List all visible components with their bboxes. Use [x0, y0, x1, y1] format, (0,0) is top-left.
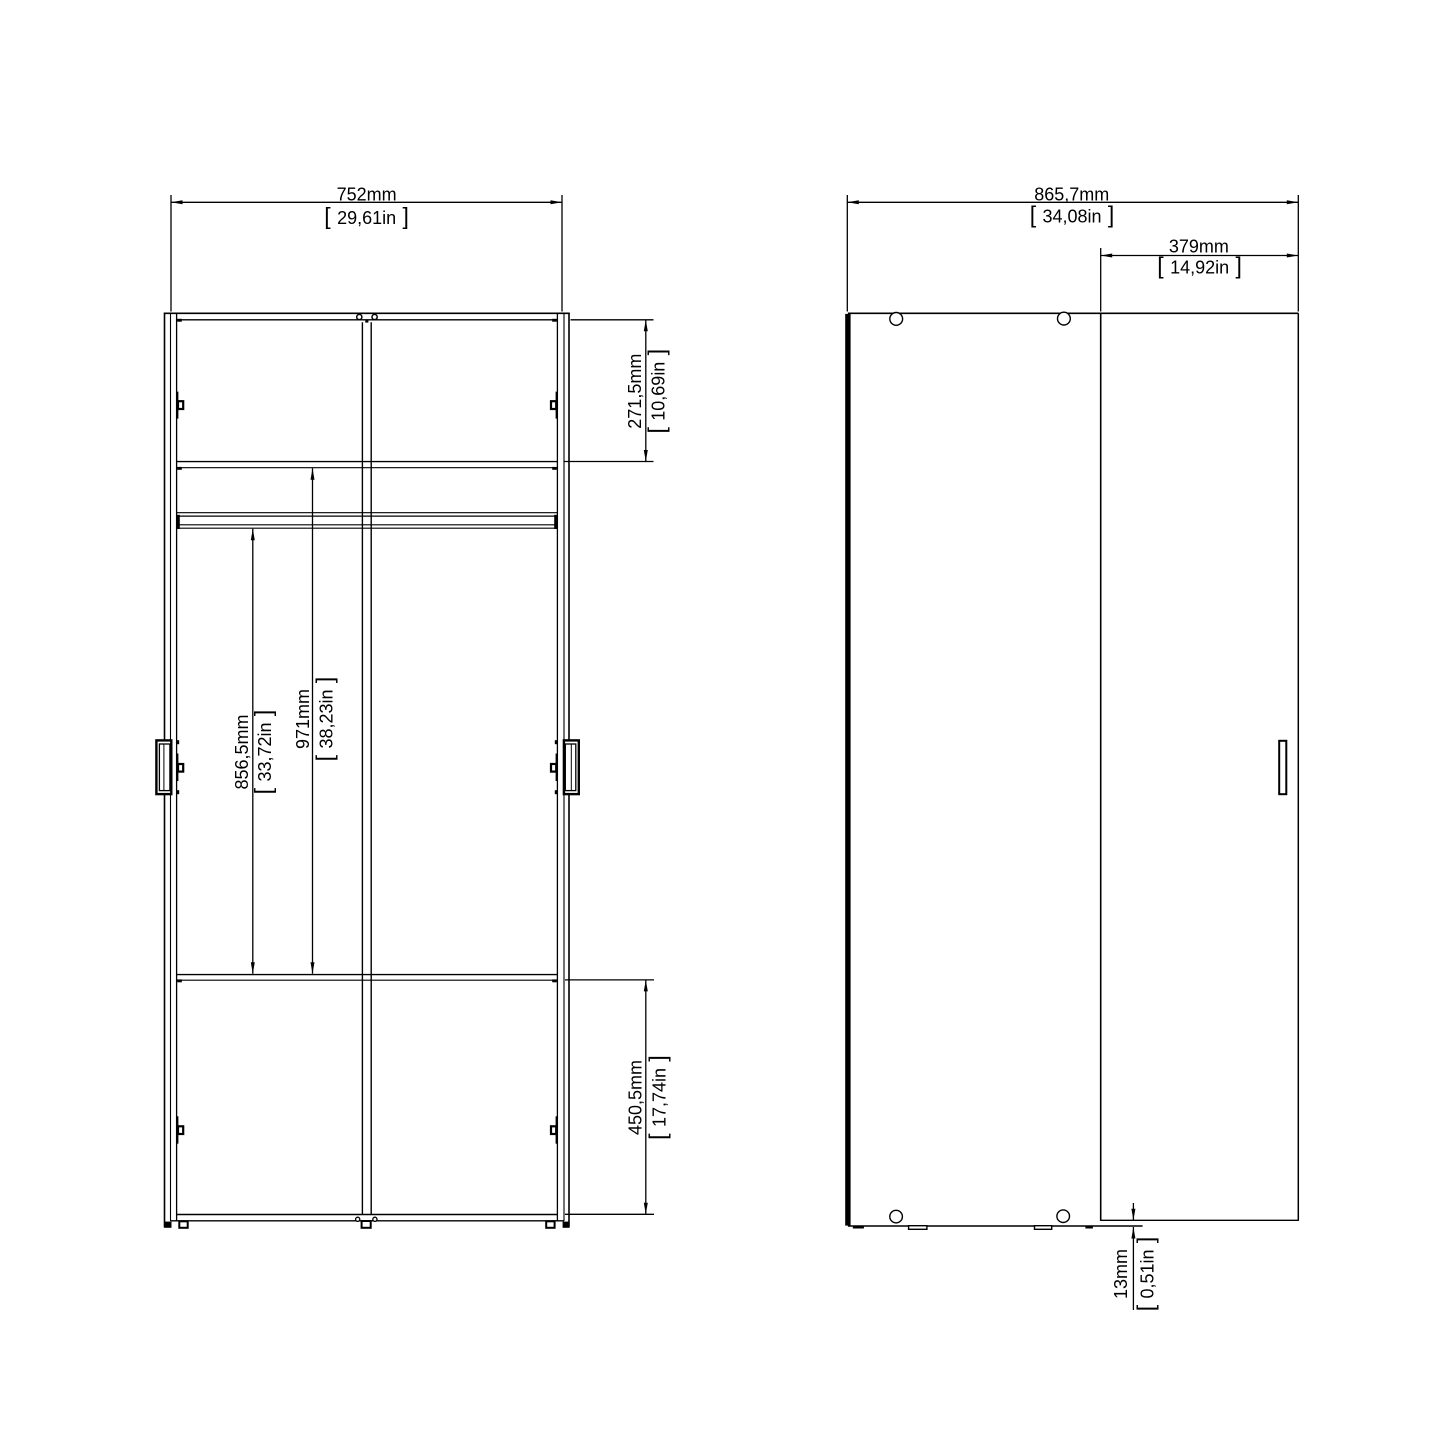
svg-text:856,5mm: 856,5mm: [232, 714, 252, 789]
svg-text:450,5mm: 450,5mm: [626, 1060, 646, 1135]
svg-text:13mm: 13mm: [1111, 1249, 1131, 1299]
svg-text:752mm: 752mm: [337, 184, 397, 204]
svg-text:865,7mm: 865,7mm: [1034, 184, 1109, 204]
svg-text:271,5mm: 271,5mm: [625, 354, 645, 429]
svg-text:379mm: 379mm: [1169, 236, 1229, 256]
svg-text:971mm: 971mm: [293, 689, 313, 749]
